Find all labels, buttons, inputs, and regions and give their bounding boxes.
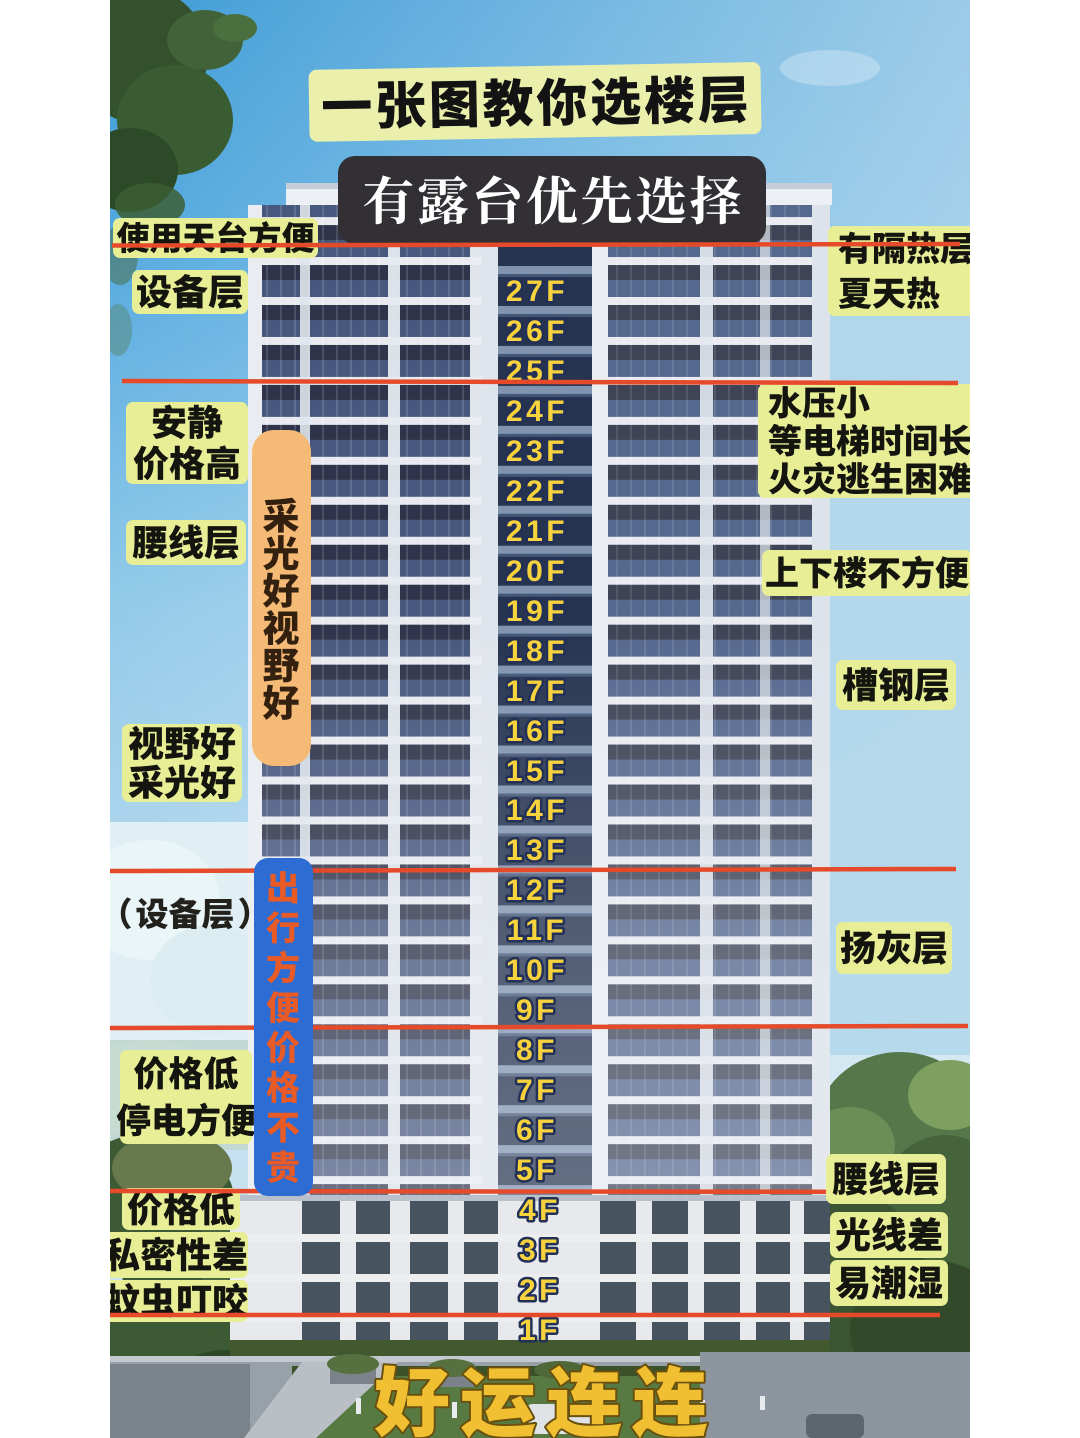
svg-text:26F: 26F [506, 315, 568, 348]
svg-text:21F: 21F [506, 515, 568, 548]
svg-text:20F: 20F [506, 555, 568, 588]
svg-text:4F: 4F [519, 1194, 561, 1227]
svg-text:11F: 11F [507, 914, 568, 947]
svg-text:14F: 14F [506, 794, 568, 827]
svg-text:9F: 9F [516, 994, 558, 1027]
svg-text:8F: 8F [516, 1034, 558, 1067]
svg-text:5F: 5F [516, 1154, 558, 1187]
svg-text:13F: 13F [506, 834, 568, 867]
svg-text:19F: 19F [506, 595, 568, 628]
svg-text:3F: 3F [519, 1234, 561, 1267]
svg-text:12F: 12F [506, 874, 568, 907]
svg-text:15F: 15F [506, 755, 568, 788]
svg-text:16F: 16F [506, 715, 568, 748]
svg-text:23F: 23F [506, 435, 568, 468]
svg-text:10F: 10F [506, 954, 568, 987]
svg-text:18F: 18F [506, 635, 568, 668]
svg-text:27F: 27F [506, 275, 568, 308]
svg-text:17F: 17F [506, 675, 568, 708]
svg-text:6F: 6F [516, 1114, 558, 1147]
svg-text:22F: 22F [506, 475, 568, 508]
svg-text:7F: 7F [516, 1074, 558, 1107]
svg-text:2F: 2F [519, 1274, 561, 1307]
svg-text:24F: 24F [506, 395, 568, 428]
svg-text:1F: 1F [519, 1314, 561, 1347]
